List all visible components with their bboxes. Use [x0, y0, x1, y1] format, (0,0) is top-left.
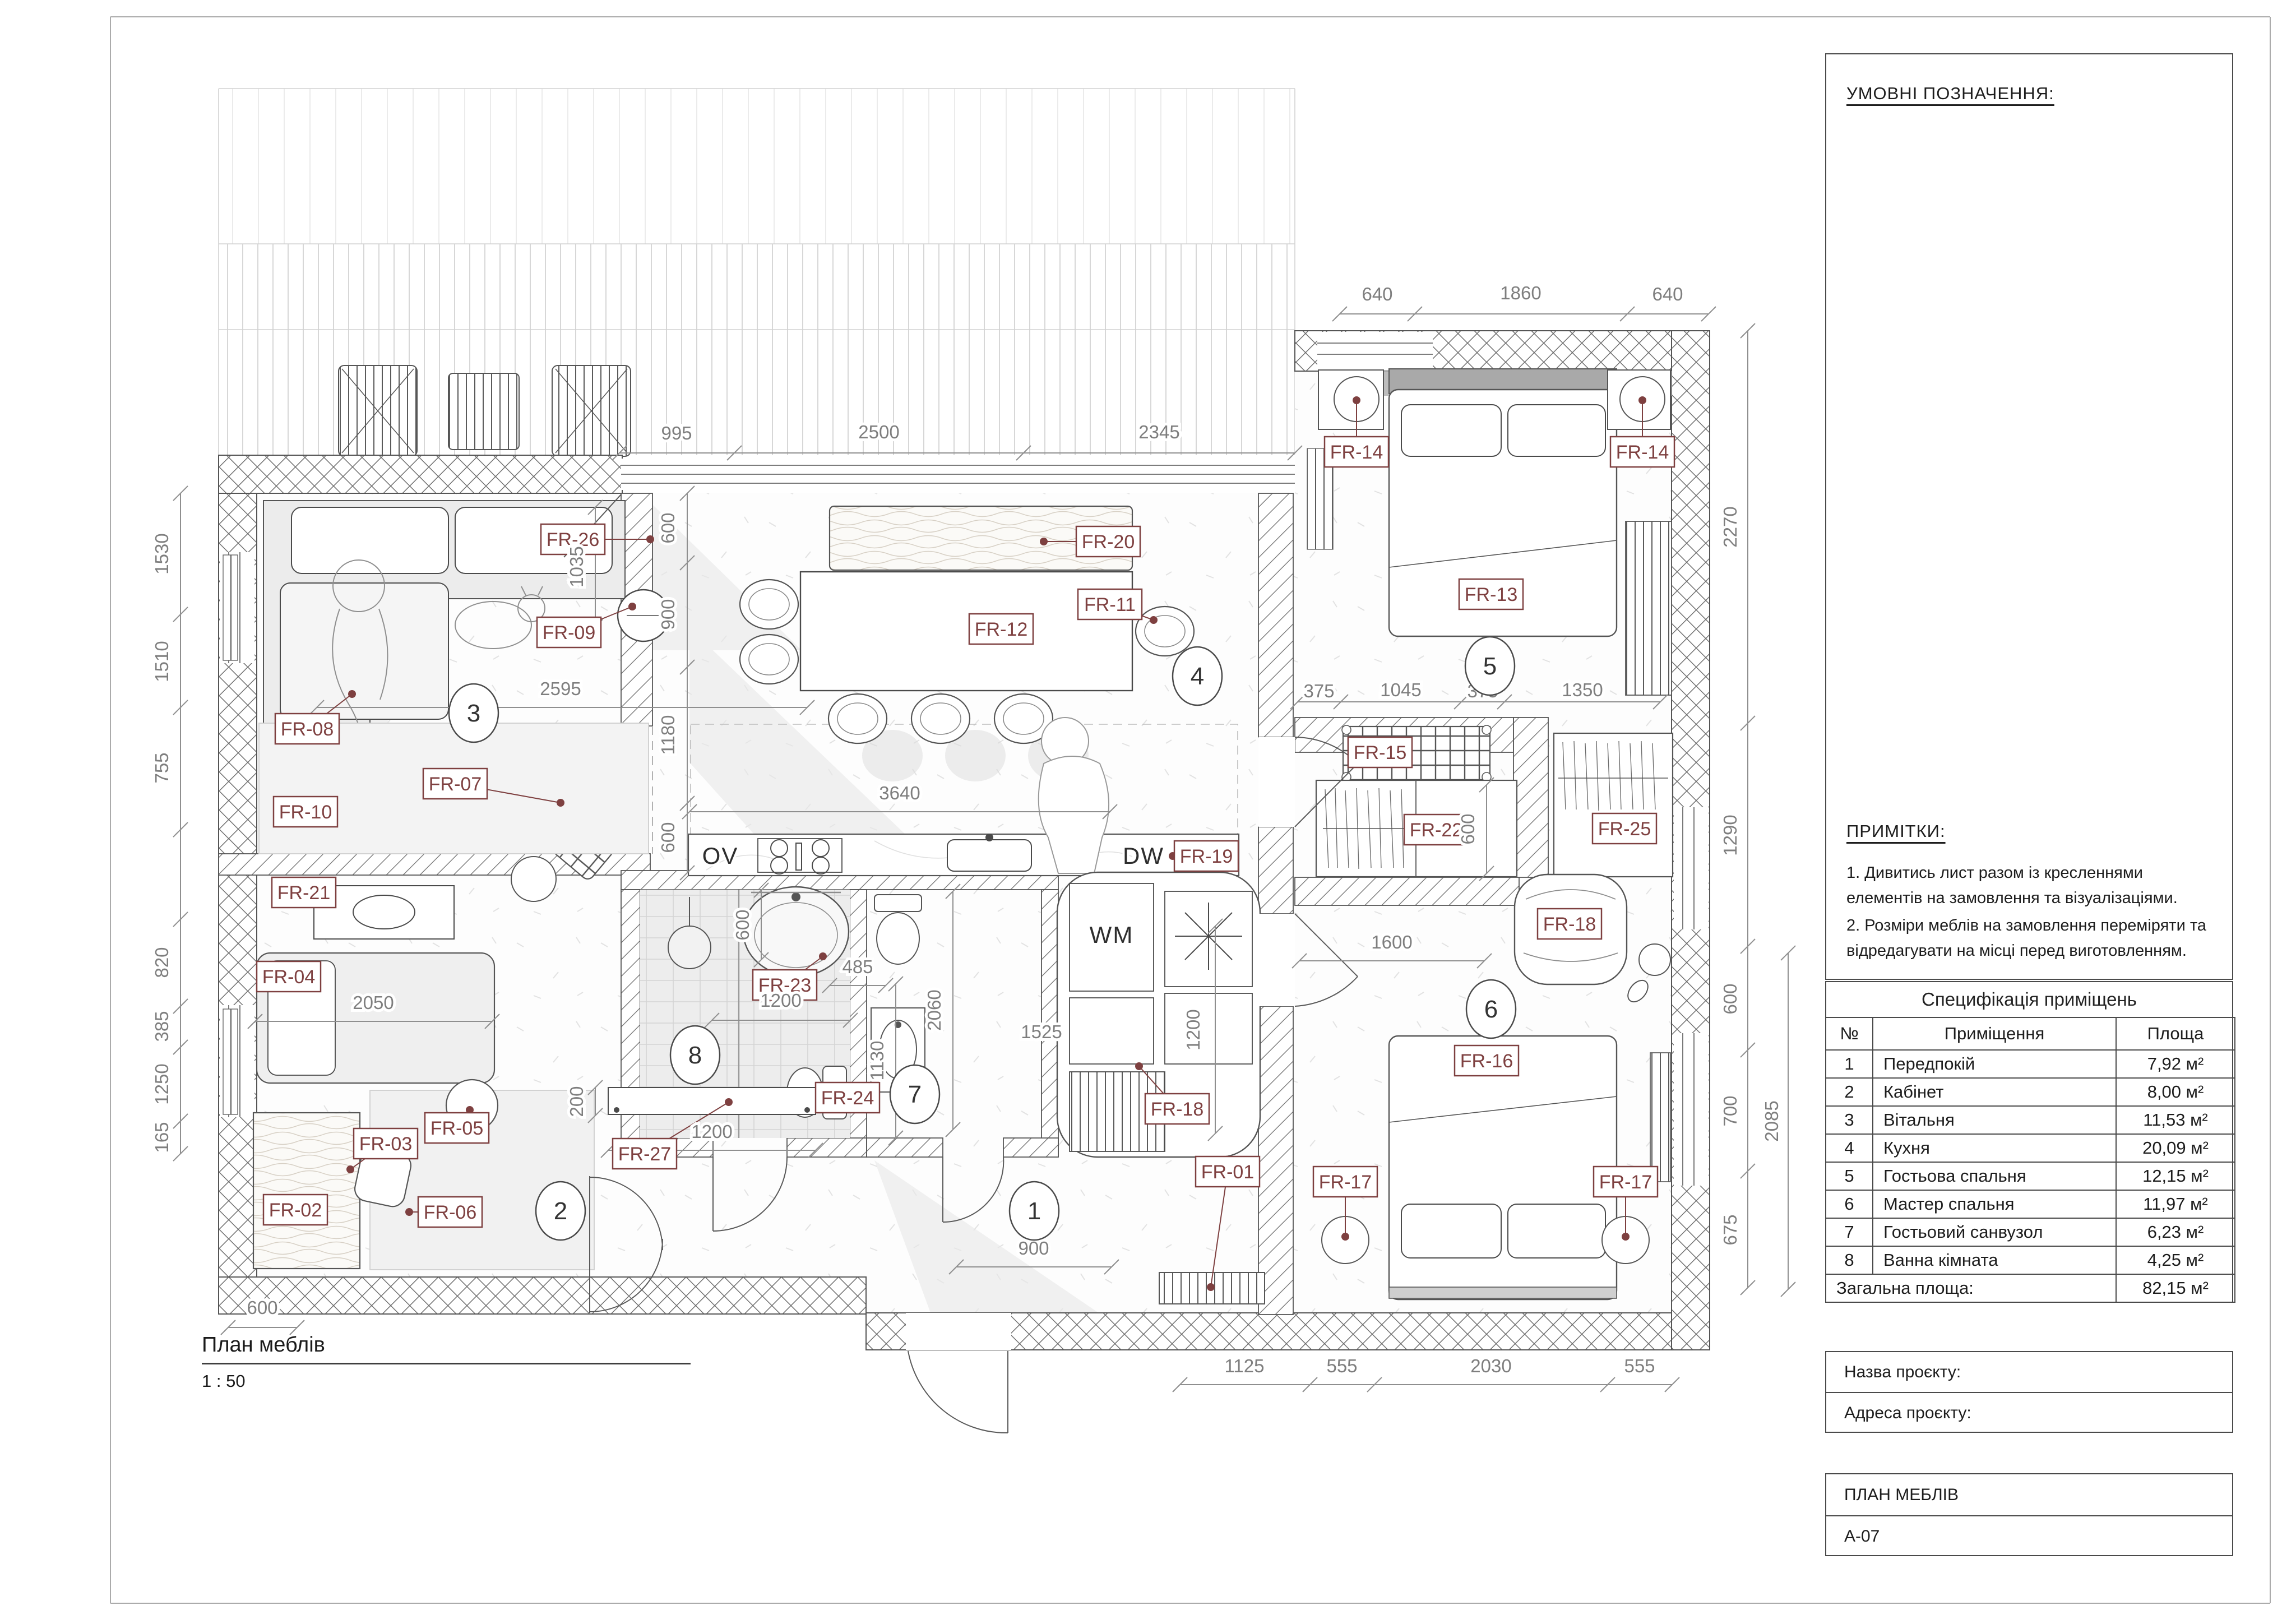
leader-dot: [1622, 1233, 1630, 1241]
dimension-text: 1530: [151, 533, 172, 574]
dimension-text: 165: [151, 1122, 172, 1153]
project-address-field: Адреса проєкту:: [1826, 1393, 2232, 1433]
leader-dot: [1638, 396, 1646, 404]
dimension-text: 995: [661, 423, 692, 443]
sheet-title: ПЛАН МЕБЛІВ: [1826, 1474, 2232, 1516]
dimension-text: 1200: [691, 1121, 732, 1142]
dimension-text: 1250: [151, 1063, 172, 1104]
spec-total-row: Загальна площа: 82,15 м²: [1826, 1274, 2235, 1302]
svg-text:5: 5: [1483, 653, 1497, 680]
fr-label-fr-18: FR-18: [1538, 909, 1601, 939]
svg-text:FR-13: FR-13: [1465, 584, 1517, 605]
svg-text:FR-24: FR-24: [821, 1088, 874, 1109]
terrace-chair: [339, 365, 417, 456]
svg-text:FR-18: FR-18: [1543, 914, 1596, 935]
dimension-text: 755: [151, 752, 172, 783]
kitchen-sink: [947, 840, 1031, 871]
leader-dot: [628, 603, 636, 610]
svg-text:FR-08: FR-08: [281, 719, 334, 740]
leader-dot: [1207, 1283, 1215, 1291]
svg-text:FR-05: FR-05: [430, 1118, 483, 1139]
plan-title: План меблів: [202, 1333, 695, 1357]
spec-row: 1Передпокій7,92 м²: [1826, 1050, 2235, 1078]
spec-cell: 12,15 м²: [2116, 1162, 2235, 1190]
sheet-number: A-07: [1826, 1516, 2232, 1556]
appliance-label-wm: WM: [1090, 922, 1134, 948]
spec-cell: 7: [1826, 1218, 1873, 1246]
leader-dot: [1135, 1062, 1143, 1070]
spec-cell: 7,92 м²: [2116, 1050, 2235, 1078]
dimension-text: 200: [566, 1086, 587, 1117]
spec-cell: 6,23 м²: [2116, 1218, 2235, 1246]
spec-cell: Гостьовий санвузол: [1873, 1218, 2116, 1246]
spec-row: 5Гостьова спальня12,15 м²: [1826, 1162, 2235, 1190]
sheet-title-box: ПЛАН МЕБЛІВ A-07: [1825, 1473, 2233, 1556]
spec-row: 7Гостьовий санвузол6,23 м²: [1826, 1218, 2235, 1246]
dimension-text: 820: [151, 947, 172, 978]
fr-label-fr-24: FR-24: [816, 1082, 879, 1113]
fr-label-fr-02: FR-02: [263, 1195, 327, 1225]
notes-title: ПРИМІТКИ:: [1846, 821, 1946, 841]
svg-text:FR-11: FR-11: [1084, 594, 1136, 616]
fr-label-fr-12: FR-12: [969, 614, 1033, 644]
spec-cell: Передпокій: [1873, 1050, 2116, 1078]
svg-text:4: 4: [1191, 663, 1204, 690]
dimension-text: 1045: [1380, 679, 1421, 700]
room-number-2: 2: [536, 1182, 585, 1240]
room-spec-table: Специфікація приміщень № Приміщення Площ…: [1825, 981, 2233, 1303]
dimension-text: 1290: [1720, 815, 1740, 855]
svg-text:FR-19: FR-19: [1180, 846, 1233, 867]
svg-text:FR-03: FR-03: [359, 1133, 412, 1155]
svg-text:FR-16: FR-16: [1460, 1051, 1513, 1072]
desk: [253, 1113, 360, 1269]
dimension-text: 1510: [151, 641, 172, 682]
room-number-8: 8: [670, 1026, 720, 1084]
terrace-table: [448, 373, 519, 450]
svg-text:6: 6: [1484, 996, 1498, 1023]
project-name-field: Назва проєкту:: [1826, 1352, 2232, 1393]
dimension-text: 675: [1720, 1214, 1740, 1245]
svg-text:3: 3: [467, 700, 480, 727]
dimension-text: 2060: [924, 989, 945, 1030]
title-rule: [202, 1363, 691, 1364]
fr-label-fr-10: FR-10: [274, 797, 337, 827]
dimension-text: 900: [1018, 1238, 1049, 1259]
leader-dot: [725, 1098, 733, 1106]
small-table: [511, 857, 556, 901]
room-number-3: 3: [449, 684, 498, 742]
col-room: Приміщення: [1873, 1017, 2116, 1050]
entry-door: [908, 1351, 1008, 1433]
dimension-text: 600: [732, 909, 753, 940]
shower-head-icon: [668, 926, 711, 969]
col-number: №: [1826, 1017, 1873, 1050]
spec-cell: Кухня: [1873, 1134, 2116, 1162]
fr-label-fr-15: FR-15: [1348, 737, 1412, 767]
dimension-text: 600: [247, 1297, 277, 1318]
svg-text:FR-14: FR-14: [1330, 442, 1383, 463]
dimension-text: 600: [1457, 813, 1478, 844]
spec-cell: 8: [1826, 1246, 1873, 1274]
spec-cell: 6: [1826, 1190, 1873, 1218]
room-number-6: 6: [1466, 980, 1516, 1038]
spec-row: 6Мастер спальня11,97 м²: [1826, 1190, 2235, 1218]
dimension-text: 2595: [540, 678, 581, 699]
svg-text:FR-10: FR-10: [279, 802, 332, 823]
dimension-text: 600: [658, 512, 678, 543]
dimension-text: 600: [658, 822, 678, 853]
fr-label-fr-25: FR-25: [1593, 813, 1656, 844]
dimension-text: 1525: [1021, 1021, 1062, 1042]
spec-cell: Ванна кімната: [1873, 1246, 2116, 1274]
spec-row: 4Кухня20,09 м²: [1826, 1134, 2235, 1162]
room-number-1: 1: [1010, 1182, 1059, 1240]
spec-row: 2Кабінет8,00 м²: [1826, 1078, 2235, 1106]
dimension-text: 1125: [1225, 1355, 1265, 1376]
svg-text:FR-02: FR-02: [269, 1200, 322, 1221]
svg-text:FR-12: FR-12: [975, 619, 1027, 640]
fr-label-fr-04: FR-04: [257, 961, 321, 992]
fr-label-fr-13: FR-13: [1459, 579, 1523, 609]
svg-text:1: 1: [1027, 1197, 1041, 1225]
svg-text:FR-17: FR-17: [1599, 1172, 1652, 1193]
note-item: 1. Дивитись лист разом із кресленнями ел…: [1846, 860, 2216, 911]
total-label: Загальна площа:: [1826, 1274, 2116, 1302]
svg-text:2: 2: [554, 1197, 567, 1225]
terrace-deck: [219, 89, 1295, 456]
spec-cell: 1: [1826, 1050, 1873, 1078]
dimension-text: 1130: [867, 1041, 887, 1081]
leader-dot: [405, 1208, 413, 1216]
svg-text:FR-22: FR-22: [1410, 820, 1462, 841]
col-area: Площа: [2116, 1017, 2235, 1050]
dimension-text: 2050: [353, 992, 394, 1013]
leader-dot: [348, 690, 356, 698]
radiator: [1650, 1053, 1670, 1182]
fan-symbol: [1175, 903, 1242, 970]
dimension-text: 555: [1326, 1355, 1357, 1376]
spec-table-title: Специфікація приміщень: [1826, 982, 2232, 1018]
svg-text:FR-25: FR-25: [1598, 818, 1651, 840]
svg-text:7: 7: [908, 1081, 922, 1108]
dimension-text: 3640: [879, 783, 920, 803]
dimension-text: 1860: [1500, 283, 1541, 303]
dimension-text: 2500: [858, 422, 899, 442]
dimension-text: 2030: [1470, 1355, 1511, 1376]
plan-caption: План меблів 1 : 50: [202, 1333, 695, 1391]
leader-dot: [646, 535, 654, 543]
notes-list: 1. Дивитись лист разом із кресленнями ел…: [1846, 860, 2216, 966]
dimension-text: 600: [1720, 983, 1740, 1014]
spec-cell: Мастер спальня: [1873, 1190, 2116, 1218]
spec-cell: 4: [1826, 1134, 1873, 1162]
dimension-text: 385: [151, 1011, 172, 1042]
legend-title: УМОВНІ ПОЗНАЧЕННЯ:: [1846, 84, 2054, 104]
fr-label-fr-16: FR-16: [1455, 1045, 1519, 1076]
svg-text:FR-04: FR-04: [262, 966, 315, 988]
svg-text:FR-20: FR-20: [1082, 531, 1135, 553]
spec-cell: 20,09 м²: [2116, 1134, 2235, 1162]
dimension-text: 375: [1303, 681, 1334, 701]
room-number-7: 7: [890, 1065, 939, 1123]
leader-dot: [1040, 538, 1048, 545]
radiator: [223, 555, 238, 660]
leader-dot: [557, 799, 564, 807]
appliance-label-ov: OV: [702, 843, 739, 869]
fr-label-fr-19: FR-19: [1169, 841, 1238, 871]
spec-cell: 5: [1826, 1162, 1873, 1190]
room-number-5: 5: [1465, 637, 1515, 695]
svg-text:FR-17: FR-17: [1319, 1172, 1372, 1193]
fr-label-fr-21: FR-21: [272, 877, 336, 908]
svg-text:FR-07: FR-07: [429, 774, 482, 795]
dimension-text: 640: [1362, 284, 1392, 304]
legend-box: УМОВНІ ПОЗНАЧЕННЯ: ПРИМІТКИ: 1. Дивитись…: [1825, 53, 2233, 980]
svg-text:FR-09: FR-09: [543, 622, 595, 644]
dimension-text: 700: [1720, 1095, 1740, 1126]
dimension-text: 1180: [658, 715, 678, 755]
dimension-text: 900: [658, 599, 678, 630]
dimension-text: 2085: [1761, 1100, 1782, 1141]
svg-text:FR-27: FR-27: [618, 1144, 671, 1165]
dimension-text: 2345: [1138, 422, 1179, 442]
plan-scale: 1 : 50: [202, 1371, 695, 1391]
spec-cell: Вітальня: [1873, 1106, 2116, 1134]
dimension-text: 485: [842, 956, 873, 977]
svg-text:8: 8: [688, 1042, 702, 1069]
total-value: 82,15 м²: [2116, 1274, 2235, 1302]
dimension-text: 555: [1624, 1355, 1655, 1376]
spec-row: 3Вітальня11,53 м²: [1826, 1106, 2235, 1134]
dimension-text: 1200: [1183, 1009, 1203, 1050]
dimension-text: 640: [1652, 284, 1683, 304]
dimension-text: 2270: [1720, 506, 1740, 547]
dimension-text: 1350: [1562, 679, 1603, 700]
dimension-text: 1200: [760, 990, 801, 1011]
radiator: [1626, 521, 1672, 695]
room-number-4: 4: [1173, 647, 1222, 705]
leader-dot: [1353, 396, 1360, 404]
spec-cell: 2: [1826, 1078, 1873, 1106]
leader-dot: [819, 952, 827, 960]
leader-dot: [1341, 1233, 1349, 1241]
spec-cell: 8,00 м²: [2116, 1078, 2235, 1106]
spec-cell: Кабінет: [1873, 1078, 2116, 1106]
svg-text:FR-01: FR-01: [1201, 1162, 1254, 1183]
dimension-text: 1600: [1371, 932, 1412, 952]
console: [608, 1088, 816, 1114]
leader-dot: [1150, 616, 1158, 624]
appliance-label-dw: DW: [1123, 843, 1164, 869]
side-table: [1639, 944, 1670, 975]
svg-text:FR-21: FR-21: [277, 882, 330, 904]
toilet-icon: [874, 895, 922, 964]
drawing-sheet: FR-26FR-09FR-08FR-10FR-07FR-21FR-04FR-03…: [0, 0, 2296, 1624]
svg-text:FR-06: FR-06: [424, 1202, 476, 1223]
tv: [353, 895, 415, 929]
project-info-box: Назва проєкту: Адреса проєкту:: [1825, 1351, 2233, 1433]
bed-base: [1389, 1287, 1617, 1298]
svg-text:FR-14: FR-14: [1616, 442, 1669, 463]
dimension-text: 1035: [566, 546, 587, 587]
svg-text:FR-15: FR-15: [1354, 742, 1406, 764]
note-item: 2. Розміри меблів на замовлення переміря…: [1846, 913, 2216, 964]
spec-cell: 11,53 м²: [2116, 1106, 2235, 1134]
leader-dot: [346, 1165, 354, 1173]
spec-row: 8Ванна кімната4,25 м²: [1826, 1246, 2235, 1274]
spec-cell: Гостьова спальня: [1873, 1162, 2116, 1190]
spec-cell: 4,25 м²: [2116, 1246, 2235, 1274]
svg-text:FR-18: FR-18: [1151, 1099, 1203, 1120]
spec-header-row: № Приміщення Площа: [1826, 1017, 2235, 1050]
spec-cell: 3: [1826, 1106, 1873, 1134]
terrace-chair: [552, 365, 631, 456]
spec-cell: 11,97 м²: [2116, 1190, 2235, 1218]
radiator: [223, 1009, 238, 1114]
